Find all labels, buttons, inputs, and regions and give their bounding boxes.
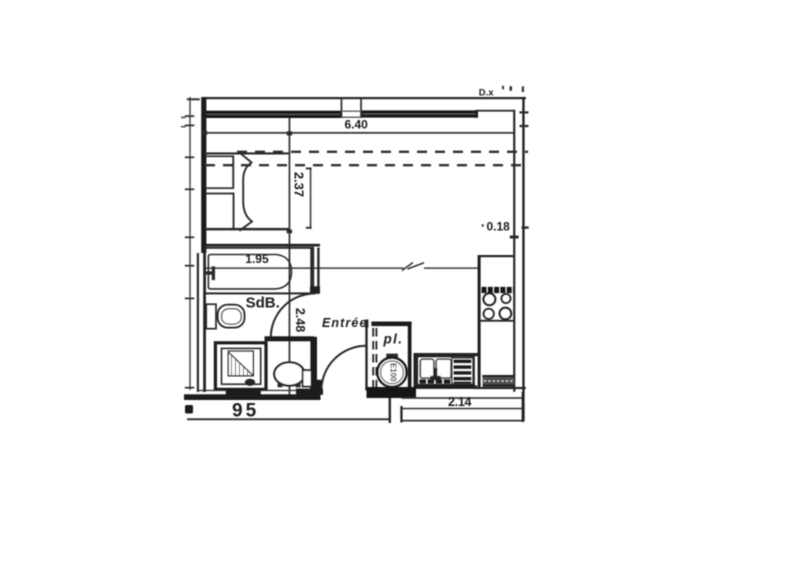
svg-text:pl.: pl. [383,332,404,347]
svg-text:Entrée: Entrée [322,316,368,330]
svg-text:1.95: 1.95 [245,252,269,266]
svg-text:E100: E100 [388,363,397,382]
svg-text:D.x: D.x [479,88,495,99]
svg-text:SdB.: SdB. [246,295,280,312]
svg-text:2.14: 2.14 [448,395,471,409]
svg-text:6.40: 6.40 [345,118,369,132]
svg-text:2.48: 2.48 [293,308,307,332]
svg-text:0.18: 0.18 [487,220,511,234]
svg-text:2.37: 2.37 [291,172,306,197]
